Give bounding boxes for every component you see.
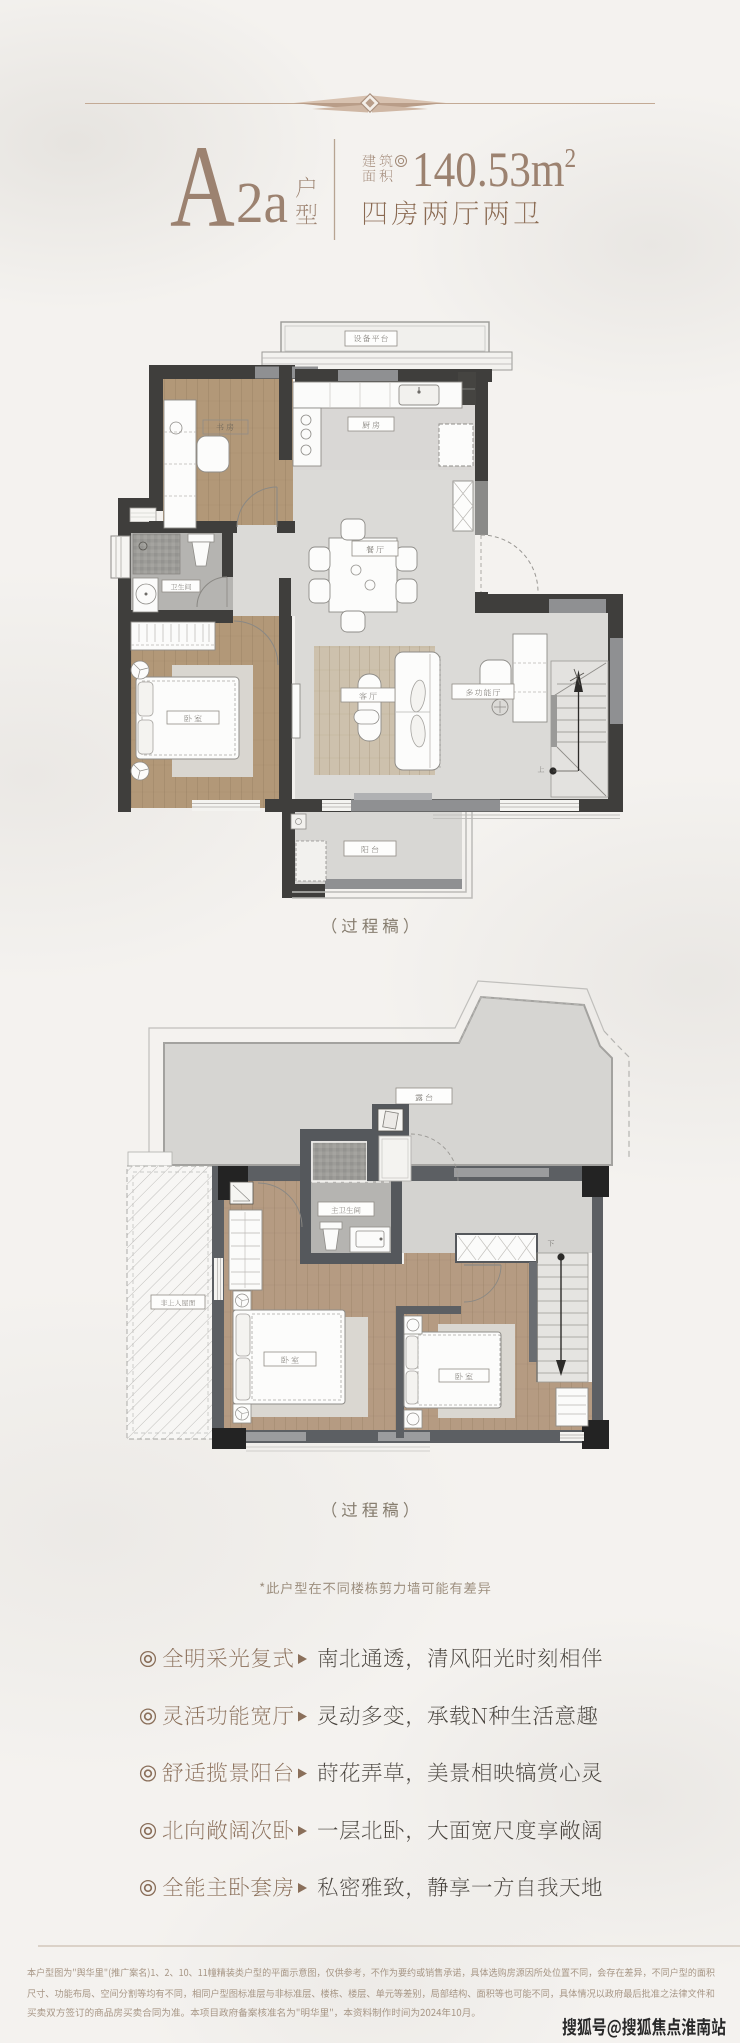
svg-text:2a: 2a bbox=[236, 172, 288, 236]
svg-text:A: A bbox=[170, 121, 235, 252]
svg-text:140.53m2: 140.53m2 bbox=[412, 142, 576, 198]
